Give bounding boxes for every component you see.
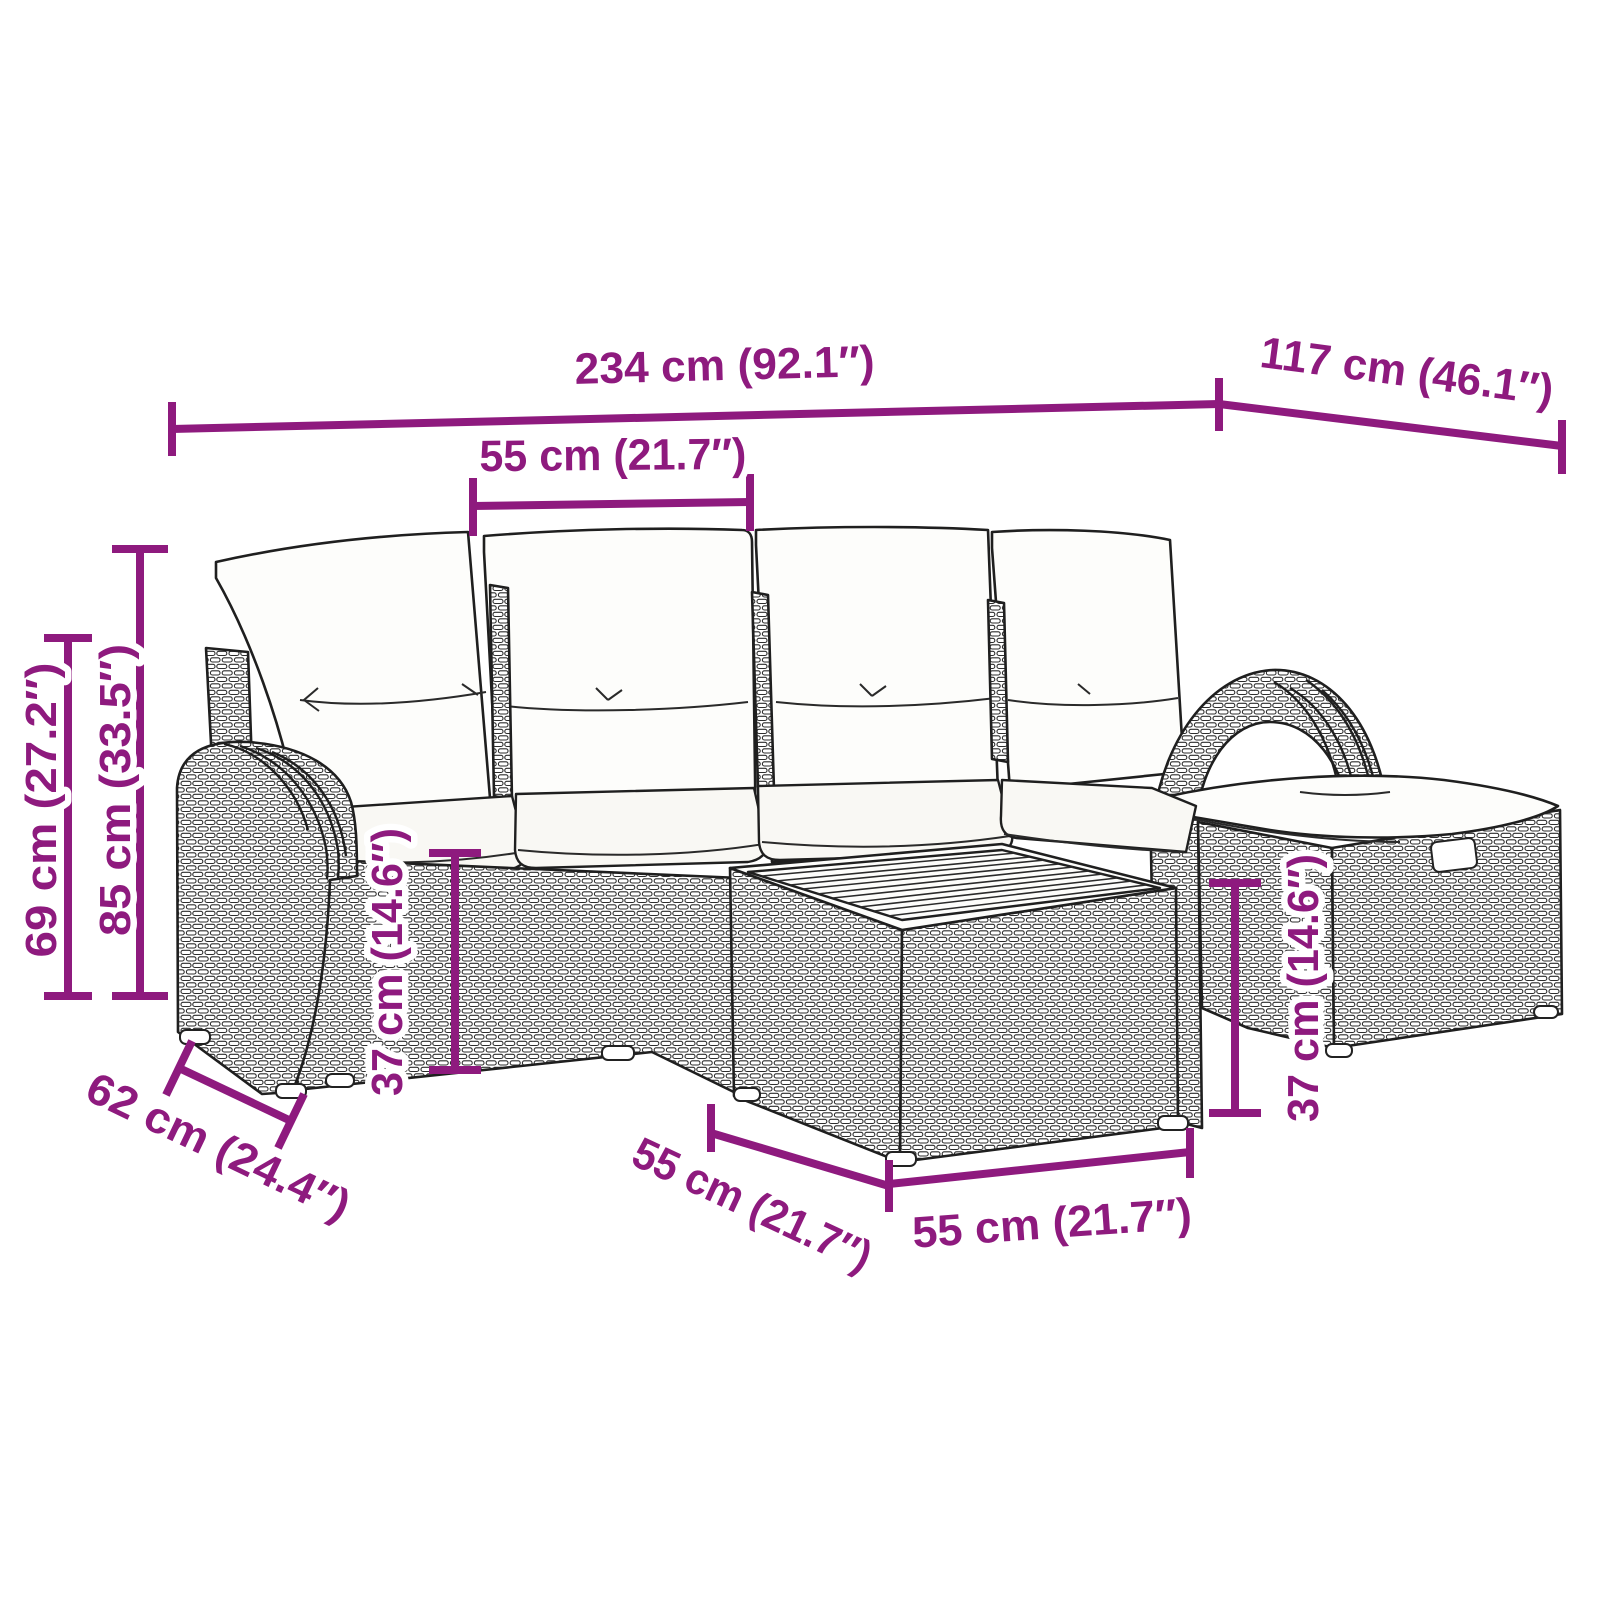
coffee-table [730, 844, 1178, 1162]
ottoman-strap [1430, 837, 1477, 872]
dimension-label: 85 cm (33.5″) [91, 644, 140, 936]
dimension-label: 37 cm (14.6″) [1279, 854, 1328, 1122]
dimension-diagram-page: 234 cm (92.1″) 117 cm (46.1″) 55 cm (21.… [0, 0, 1600, 1600]
dimension-label: 55 cm (21.7″) [625, 1128, 880, 1281]
dimension-total-depth: 117 cm (46.1″) [1219, 328, 1562, 474]
furniture-dimension-diagram: 234 cm (92.1″) 117 cm (46.1″) 55 cm (21.… [0, 0, 1600, 1600]
dimension-back-height: 85 cm (33.5″) [91, 549, 168, 996]
dimension-arm-height: 69 cm (27.2″) [17, 638, 92, 996]
table-right-face [900, 888, 1178, 1162]
dimension-label: 37 cm (14.6″) [363, 828, 412, 1096]
dimension-label: 234 cm (92.1″) [574, 337, 875, 394]
dimension-label: 69 cm (27.2″) [17, 663, 66, 958]
ottoman [1158, 776, 1562, 1048]
back-cushion-4 [992, 530, 1184, 790]
dimension-label: 55 cm (21.7″) [479, 430, 746, 481]
dimension-seat-width: 55 cm (21.7″) [473, 430, 750, 536]
frame-post [988, 600, 1008, 762]
seat-cushion-2 [515, 788, 766, 868]
frame-post [490, 585, 512, 800]
dimension-label: 117 cm (46.1″) [1257, 328, 1556, 415]
dimension-label: 55 cm (21.7″) [911, 1189, 1194, 1257]
